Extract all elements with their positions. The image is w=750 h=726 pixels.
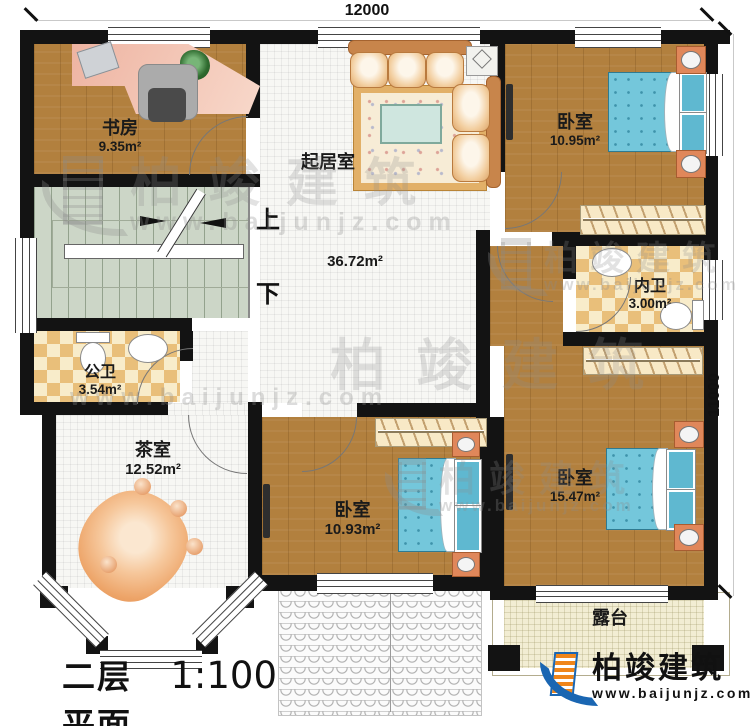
room-name: 公卫 bbox=[52, 364, 148, 382]
plan-title: 二层平面图 bbox=[62, 650, 160, 726]
stair-edge bbox=[248, 187, 250, 318]
nightstand bbox=[452, 432, 480, 457]
window bbox=[15, 238, 37, 333]
bed-pillow bbox=[680, 73, 706, 113]
room-area: 10.93m² bbox=[295, 521, 410, 538]
roof-tile-divider bbox=[390, 590, 391, 712]
bed-pillow bbox=[455, 460, 481, 506]
floor-passage bbox=[302, 403, 357, 417]
dimension-line bbox=[733, 34, 734, 596]
sofa-cushion bbox=[452, 134, 490, 182]
wall bbox=[20, 30, 34, 415]
room-name: 内卫 bbox=[608, 278, 692, 296]
bed-pillow bbox=[455, 506, 481, 552]
dimension-tick bbox=[24, 7, 39, 22]
sink bbox=[592, 248, 632, 277]
brand-logo-icon bbox=[540, 652, 584, 706]
room-label-tea-room: 茶室 12.52m² bbox=[98, 440, 208, 478]
room-label-study: 书房 9.35m² bbox=[58, 118, 182, 154]
dimension-top: 12000 bbox=[332, 2, 402, 20]
stool bbox=[186, 538, 203, 555]
room-label-bedroom-middle: 卧室 10.93m² bbox=[295, 500, 410, 538]
dimension-line bbox=[34, 20, 710, 21]
wall bbox=[248, 402, 262, 577]
wall bbox=[357, 403, 490, 417]
room-area-living: 36.72m² bbox=[305, 253, 405, 270]
room-name: 卧室 bbox=[515, 112, 635, 133]
nightstand bbox=[452, 552, 480, 577]
room-name: 卧室 bbox=[295, 500, 410, 521]
toilet-tank bbox=[692, 300, 704, 330]
terrace-pillar bbox=[488, 645, 520, 671]
wardrobe bbox=[580, 205, 706, 235]
wall bbox=[563, 246, 576, 279]
stool bbox=[134, 478, 151, 495]
room-label-living: 起居室 bbox=[268, 152, 388, 173]
handrail bbox=[64, 244, 244, 259]
wall bbox=[20, 318, 192, 331]
brand-logo: 柏竣建筑 www.baijunjz.com bbox=[540, 652, 750, 706]
stair-arrow bbox=[200, 218, 226, 228]
window bbox=[317, 573, 433, 594]
wall bbox=[476, 230, 490, 430]
room-label-bedroom-top: 卧室 10.95m² bbox=[515, 112, 635, 148]
bed-pillow bbox=[667, 450, 695, 490]
brand-website: www.baijunjz.com bbox=[592, 684, 750, 704]
stool bbox=[170, 500, 187, 517]
bed-pillow bbox=[680, 113, 706, 153]
roof-tiles bbox=[278, 589, 482, 716]
tv bbox=[263, 484, 270, 538]
wall bbox=[20, 174, 260, 187]
stool bbox=[100, 556, 117, 573]
room-area: 9.35m² bbox=[58, 139, 182, 155]
wardrobe bbox=[583, 347, 703, 375]
wall bbox=[42, 415, 56, 591]
stairs-down-label: 下 bbox=[256, 274, 280, 309]
wall bbox=[490, 586, 536, 600]
bed-sheet bbox=[440, 458, 456, 552]
tv bbox=[506, 84, 513, 140]
window bbox=[575, 27, 661, 48]
room-area: 15.47m² bbox=[520, 489, 630, 505]
dimension-right: 11000 bbox=[706, 354, 724, 436]
room-name: 卧室 bbox=[520, 468, 630, 489]
sofa-cushion bbox=[452, 84, 490, 132]
nightstand bbox=[676, 150, 706, 178]
room-area: 12.52m² bbox=[98, 461, 208, 478]
sofa-cushion bbox=[426, 52, 464, 88]
sink bbox=[128, 334, 168, 363]
terrace-sliding-door bbox=[536, 585, 668, 603]
room-name: 书房 bbox=[58, 118, 182, 139]
floor-plan: 上 下 bbox=[0, 0, 750, 726]
sofa-cushion bbox=[350, 52, 388, 88]
bed-sheet bbox=[652, 448, 668, 530]
sofa-cushion bbox=[388, 52, 426, 88]
wall bbox=[668, 586, 718, 600]
plan-scale: 1:100 bbox=[170, 654, 277, 697]
title-block: 二层平面图 1:100 本层建筑面积：120.94m² 层高：3.3m bbox=[62, 650, 277, 726]
nightstand bbox=[674, 421, 704, 448]
brand-name: 柏竣建筑 bbox=[592, 654, 750, 684]
office-chair-seat bbox=[148, 88, 186, 122]
window bbox=[702, 260, 723, 320]
floor-passage bbox=[167, 403, 248, 415]
room-name: 茶室 bbox=[98, 440, 208, 461]
room-area: 3.00m² bbox=[608, 296, 692, 312]
wall bbox=[563, 332, 718, 346]
room-label-public-bath: 公卫 3.54m² bbox=[52, 364, 148, 398]
room-label-terrace: 露台 bbox=[570, 608, 650, 629]
room-area: 3.54m² bbox=[52, 382, 148, 398]
nightstand bbox=[676, 46, 706, 74]
room-area: 10.95m² bbox=[515, 133, 635, 149]
nightstand bbox=[674, 524, 704, 551]
room-label-ensuite-bath: 内卫 3.00m² bbox=[608, 278, 692, 312]
room-label-bedroom-right: 卧室 15.47m² bbox=[520, 468, 630, 504]
coffee-table bbox=[380, 104, 442, 144]
tv bbox=[506, 454, 513, 510]
stair-arrow bbox=[140, 216, 166, 226]
stairs-up-label: 上 bbox=[256, 200, 280, 235]
